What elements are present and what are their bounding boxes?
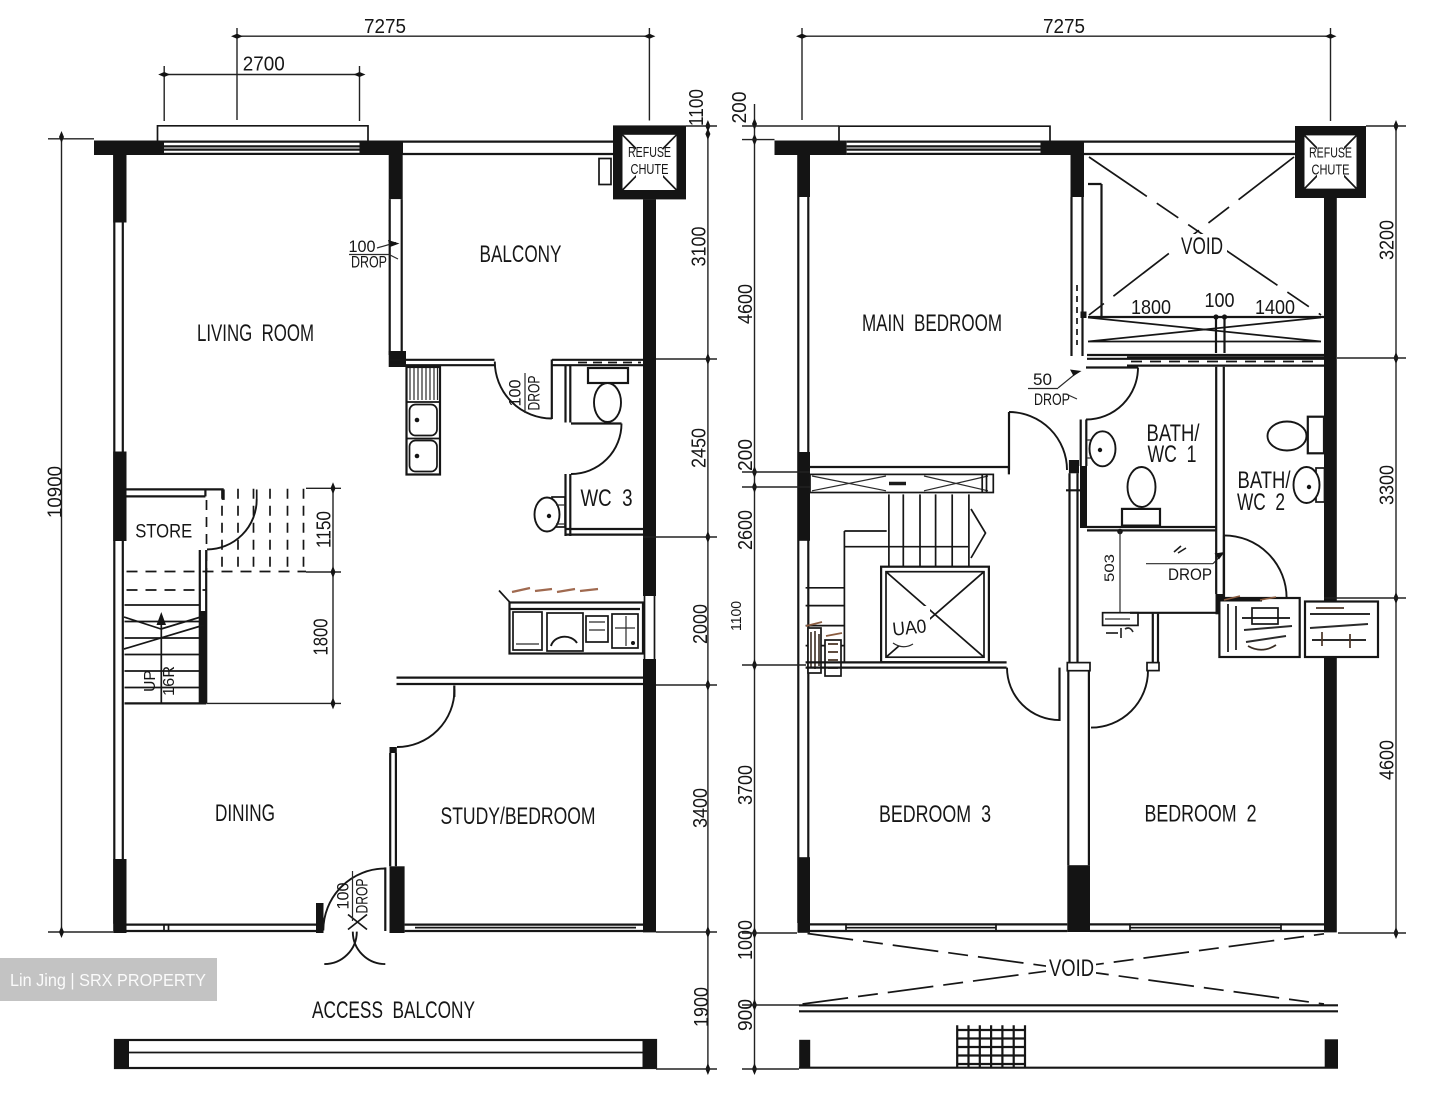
svg-text:WC 1: WC 1 bbox=[1148, 441, 1197, 468]
svg-text:DINING: DINING bbox=[215, 800, 275, 827]
svg-text:503: 503 bbox=[1102, 554, 1117, 582]
svg-text:MAIN BEDROOM: MAIN BEDROOM bbox=[862, 310, 1002, 337]
svg-text:WC 3: WC 3 bbox=[581, 485, 633, 512]
svg-text:1000: 1000 bbox=[735, 920, 757, 960]
svg-text:UP: UP bbox=[142, 670, 159, 692]
svg-text:3200: 3200 bbox=[1377, 220, 1399, 260]
svg-text:200: 200 bbox=[735, 439, 757, 471]
svg-text:16R: 16R bbox=[161, 666, 178, 696]
svg-text:1100: 1100 bbox=[686, 89, 708, 126]
svg-text:1800: 1800 bbox=[1131, 297, 1171, 319]
svg-text:VOID: VOID bbox=[1049, 955, 1094, 982]
svg-text:1800: 1800 bbox=[311, 619, 333, 656]
svg-text:REFUSE: REFUSE bbox=[628, 144, 671, 161]
svg-text:Lin Jing | SRX PROPERTY: Lin Jing | SRX PROPERTY bbox=[10, 970, 206, 990]
svg-text:UA0: UA0 bbox=[891, 616, 927, 640]
svg-text:50: 50 bbox=[1033, 370, 1052, 389]
svg-text:10900: 10900 bbox=[45, 466, 67, 518]
svg-text:1150: 1150 bbox=[314, 511, 336, 548]
svg-text:1100: 1100 bbox=[728, 601, 745, 631]
svg-text:3400: 3400 bbox=[690, 788, 712, 828]
svg-text:ACCESS BALCONY: ACCESS BALCONY bbox=[312, 997, 475, 1024]
svg-text:LIVING ROOM: LIVING ROOM bbox=[197, 320, 314, 347]
svg-text:3100: 3100 bbox=[689, 227, 711, 267]
svg-text:DROP: DROP bbox=[1034, 390, 1070, 409]
svg-text:4600: 4600 bbox=[735, 284, 757, 324]
svg-text:2600: 2600 bbox=[735, 510, 757, 550]
svg-text:3700: 3700 bbox=[735, 765, 757, 805]
svg-text:DROP: DROP bbox=[354, 879, 372, 914]
svg-text:WC 2: WC 2 bbox=[1237, 489, 1285, 516]
svg-text:REFUSE: REFUSE bbox=[1309, 145, 1352, 162]
svg-text:900: 900 bbox=[735, 999, 757, 1031]
svg-text:100: 100 bbox=[335, 883, 353, 910]
svg-text:DROP: DROP bbox=[1168, 565, 1212, 584]
svg-text:DROP: DROP bbox=[351, 253, 387, 272]
svg-text:BEDROOM 2: BEDROOM 2 bbox=[1145, 801, 1257, 828]
svg-text:200: 200 bbox=[729, 92, 751, 124]
svg-text:CHUTE: CHUTE bbox=[631, 161, 669, 178]
svg-text:STORE: STORE bbox=[135, 522, 192, 543]
svg-text:STUDY/BEDROOM: STUDY/BEDROOM bbox=[441, 803, 596, 830]
svg-text:BALCONY: BALCONY bbox=[480, 241, 562, 268]
svg-text:2450: 2450 bbox=[689, 428, 711, 468]
svg-text:100: 100 bbox=[1205, 290, 1235, 312]
svg-text:CHUTE: CHUTE bbox=[1312, 162, 1350, 179]
svg-text:1400: 1400 bbox=[1255, 297, 1295, 319]
svg-text:VOID: VOID bbox=[1181, 233, 1223, 260]
svg-text:1900: 1900 bbox=[691, 987, 713, 1027]
svg-text:4600: 4600 bbox=[1377, 740, 1399, 780]
svg-text:7275: 7275 bbox=[364, 16, 406, 38]
svg-text:2700: 2700 bbox=[243, 54, 285, 76]
svg-text:100: 100 bbox=[507, 380, 525, 407]
svg-text:7275: 7275 bbox=[1043, 16, 1085, 38]
svg-text:2000: 2000 bbox=[690, 604, 712, 644]
svg-text:BEDROOM 3: BEDROOM 3 bbox=[879, 801, 991, 828]
svg-text:DROP: DROP bbox=[526, 376, 544, 411]
svg-text:3300: 3300 bbox=[1377, 465, 1399, 505]
